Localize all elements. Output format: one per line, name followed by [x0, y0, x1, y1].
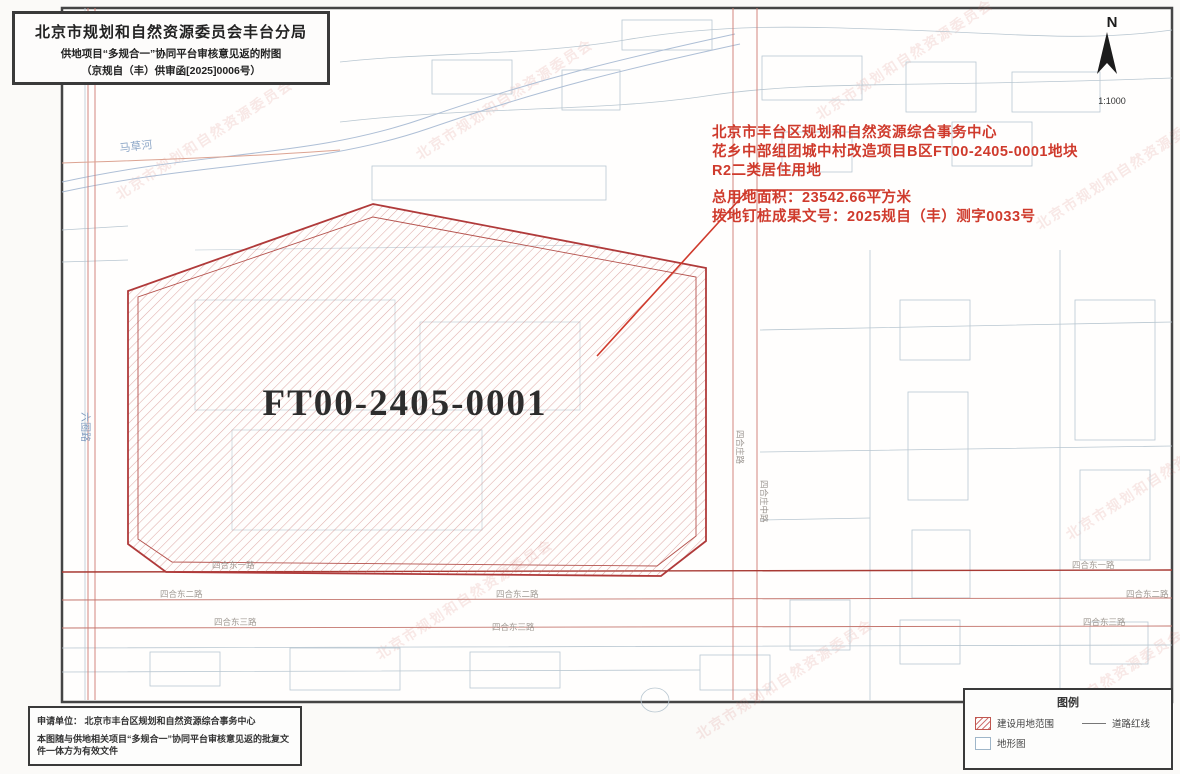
road-label: 四合东二路 — [496, 589, 539, 599]
legend-item-roadline: 道路红线 — [1112, 716, 1150, 730]
map-canvas: 北京市规划和自然资源委员会 北京市规划和自然资源委员会 北京市规划和自然资源委员… — [0, 0, 1180, 774]
road-label: 四合东三路 — [1083, 617, 1126, 627]
parcel-annotation: 北京市丰台区规划和自然资源综合事务中心 花乡中部组团城中村改造项目B区FT00-… — [712, 124, 1178, 227]
applicant-line: 申请单位： 北京市丰台区规划和自然资源综合事务中心 — [37, 714, 293, 727]
road-label-vertical: 四合庄路 — [735, 430, 745, 465]
road-label: 四合东三路 — [492, 622, 535, 632]
legend-item-construction: 建设用地范围 — [997, 716, 1054, 730]
parcel-code-label: FT00-2405-0001 — [240, 382, 570, 425]
legend-roadline-swatch — [1082, 723, 1106, 724]
annotation-survey-doc: 拨地钉桩成果文号：2025规自（丰）测字0033号 — [712, 208, 1178, 227]
scale-label: 1:1000 — [1082, 96, 1142, 106]
map-sheet: 北京市规划和自然资源委员会 北京市规划和自然资源委员会 北京市规划和自然资源委员… — [0, 0, 1180, 774]
info-box: 申请单位： 北京市丰台区规划和自然资源综合事务中心 本图随与供地相关项目“多规合… — [28, 706, 302, 766]
road-label: 四合东一路 — [212, 560, 255, 570]
title-block: 北京市规划和自然资源委员会丰台分局 供地项目“多规合一”协同平台审核意见返的附图… — [12, 11, 330, 85]
north-indicator: N 1:1000 — [1082, 14, 1142, 106]
legend-title: 图例 — [975, 694, 1161, 710]
legend-box: 图例 建设用地范围 道路红线 地形图 — [963, 688, 1173, 770]
validity-note: 本图随与供地相关项目“多规合一”协同平台审核意见返的批复文件一体方为有效文件 — [37, 733, 293, 757]
document-number: （京规自（丰）供审函[2025]0006号） — [15, 63, 327, 78]
road-label: 四合东三路 — [214, 617, 257, 627]
agency-title: 北京市规划和自然资源委员会丰台分局 — [15, 21, 327, 42]
north-label: N — [1082, 14, 1142, 31]
legend-hatch-swatch — [975, 717, 991, 730]
road-label: 四合东二路 — [160, 589, 203, 599]
annotation-project: 花乡中部组团城中村改造项目B区FT00-2405-0001地块 — [712, 143, 1178, 162]
road-label: 四合东二路 — [1126, 589, 1169, 599]
legend-basemap-swatch — [975, 737, 991, 750]
annotation-landuse: R2二类居住用地 — [712, 162, 1178, 181]
document-subtitle: 供地项目“多规合一”协同平台审核意见返的附图 — [15, 46, 327, 61]
road-label: 四合东一路 — [1072, 560, 1115, 570]
road-label-vertical: 四合庄中路 — [759, 480, 769, 523]
annotation-applicant: 北京市丰台区规划和自然资源综合事务中心 — [712, 124, 1178, 143]
legend-item-basemap: 地形图 — [997, 736, 1026, 750]
road-label-left: 六圈路 — [79, 412, 92, 442]
annotation-area: 总用地面积：23542.66平方米 — [712, 189, 1178, 208]
